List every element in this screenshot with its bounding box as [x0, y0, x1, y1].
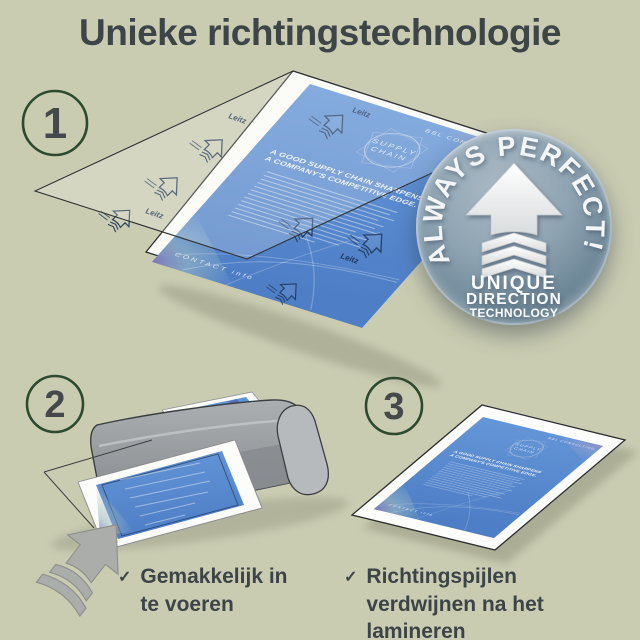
check-item-text: Gemakkelijk in te voeren	[140, 563, 298, 618]
step3-illustration	[352, 405, 638, 564]
badge-arrow-icon	[466, 163, 562, 278]
infographic-canvas: Unieke richtingstechnologie	[0, 0, 640, 640]
step3-number: 3	[383, 386, 404, 428]
check-item-text: Richtingspijlen verdwijnen na het lamine…	[366, 563, 629, 640]
step2-number: 2	[44, 384, 65, 426]
check-icon: ✓	[118, 563, 131, 588]
check-item-arrows-disappear: ✓ Richtingspijlen verdwijnen na het lami…	[344, 563, 629, 640]
step1-number: 1	[43, 99, 67, 148]
udt-badge: ALWAYS PERFECT! UNIQUE DIRECTION TECHNOL…	[416, 129, 612, 325]
check-icon: ✓	[344, 563, 357, 588]
badge-line3: TECHNOLOGY	[470, 306, 559, 320]
check-item-easy-feed: ✓ Gemakkelijk in te voeren	[118, 563, 298, 618]
